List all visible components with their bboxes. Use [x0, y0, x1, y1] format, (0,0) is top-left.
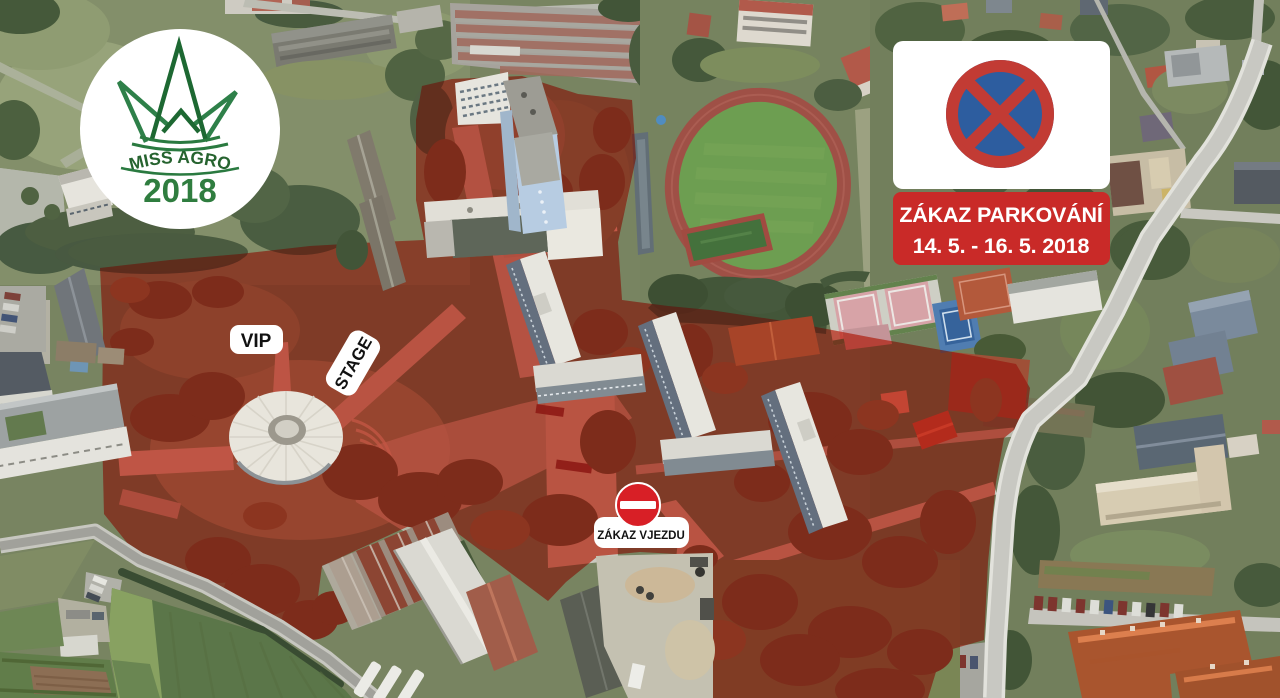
svg-text:2018: 2018	[143, 172, 216, 209]
svg-text:14. 5. - 16. 5. 2018: 14. 5. - 16. 5. 2018	[913, 234, 1090, 258]
svg-text:ZÁKAZ VJEZDU: ZÁKAZ VJEZDU	[597, 529, 685, 542]
svg-text:VIP: VIP	[241, 331, 272, 352]
svg-text:ZÁKAZ PARKOVÁNÍ: ZÁKAZ PARKOVÁNÍ	[899, 202, 1103, 227]
